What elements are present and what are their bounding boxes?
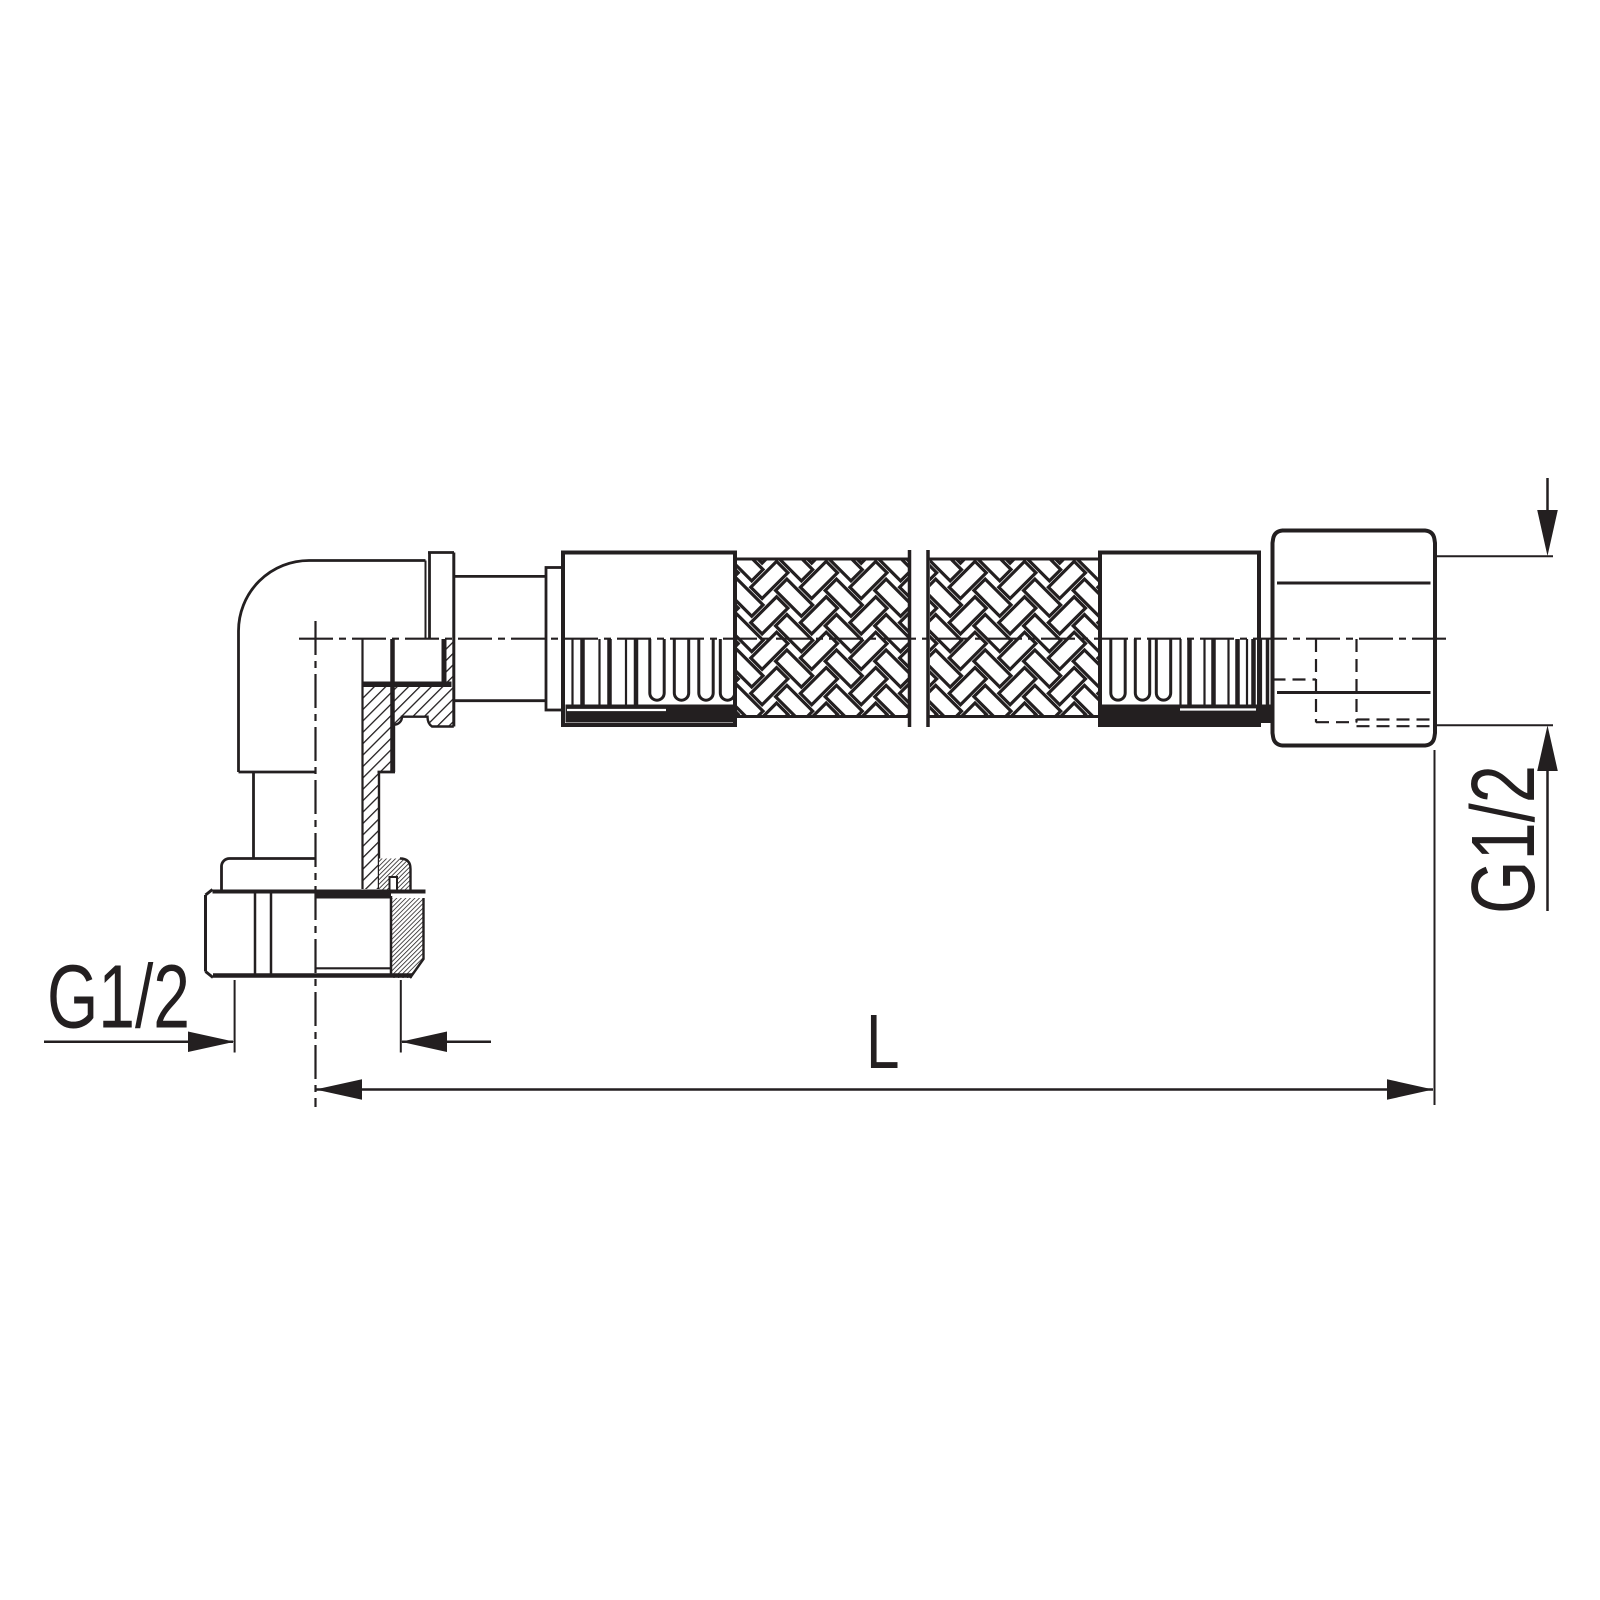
svg-text:L: L — [866, 999, 900, 1085]
svg-text:G1/2: G1/2 — [47, 948, 190, 1048]
svg-text:G1/2: G1/2 — [1454, 765, 1554, 914]
